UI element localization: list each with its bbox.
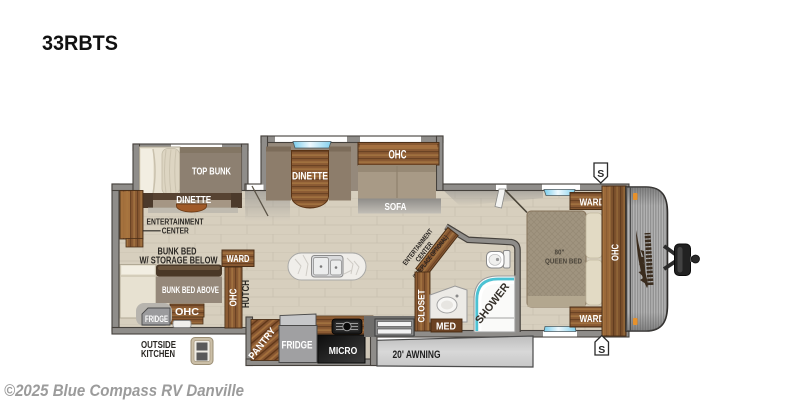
svg-text:FRIDGE: FRIDGE <box>282 340 313 352</box>
svg-text:©2025 Blue Compass RV Danville: ©2025 Blue Compass RV Danville <box>4 381 244 400</box>
svg-text:CENTER: CENTER <box>162 227 189 236</box>
svg-text:ENTERTAINMENT: ENTERTAINMENT <box>147 218 204 227</box>
svg-text:OHC: OHC <box>389 148 407 162</box>
svg-text:WARD: WARD <box>580 314 605 325</box>
svg-text:WARD: WARD <box>580 197 605 208</box>
svg-text:DINETTE: DINETTE <box>176 195 211 206</box>
svg-text:OHC: OHC <box>175 306 199 318</box>
svg-text:BUNK BED ABOVE: BUNK BED ABOVE <box>162 285 219 295</box>
svg-text:CLOSET: CLOSET <box>417 289 427 322</box>
svg-text:MICRO: MICRO <box>329 345 358 357</box>
svg-text:MED: MED <box>436 322 456 333</box>
svg-text:OHC: OHC <box>611 244 622 261</box>
svg-text:SOFA: SOFA <box>385 201 407 213</box>
svg-text:20' AWNING: 20' AWNING <box>393 349 441 361</box>
svg-text:FRIDGE: FRIDGE <box>145 314 168 325</box>
svg-text:KITCHEN: KITCHEN <box>141 348 175 360</box>
svg-text:OHC: OHC <box>229 289 240 307</box>
svg-text:DINETTE: DINETTE <box>292 171 328 183</box>
svg-text:QUEEN BED: QUEEN BED <box>545 256 582 265</box>
svg-text:S: S <box>598 344 605 356</box>
svg-text:80": 80" <box>555 248 565 257</box>
svg-text:WARD: WARD <box>227 254 250 265</box>
svg-text:33RBTS: 33RBTS <box>42 31 118 55</box>
svg-text:S: S <box>597 168 604 180</box>
svg-text:HUTCH: HUTCH <box>241 280 252 308</box>
svg-text:TOP BUNK: TOP BUNK <box>192 166 231 178</box>
